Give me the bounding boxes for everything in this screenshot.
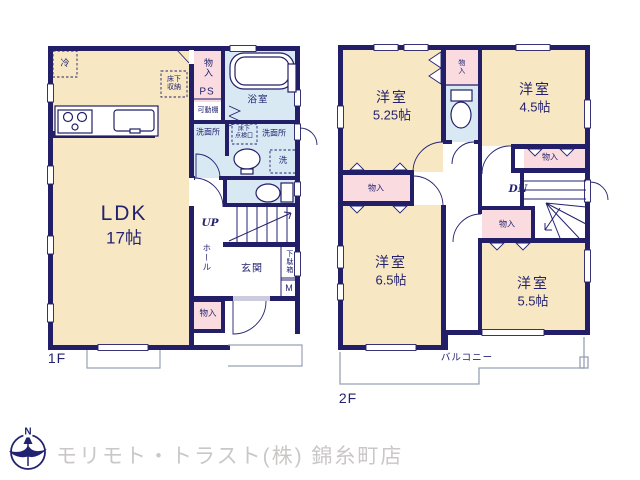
company-name: モリモト・トラスト(株) 錦糸町店: [56, 440, 403, 470]
floor1-tag: 1F: [48, 351, 66, 367]
hall-label: ホール: [201, 244, 211, 273]
floorplan-drawing: [0, 0, 640, 480]
fridge-label: 冷: [60, 58, 69, 68]
bath-counter: [288, 64, 296, 92]
room4-label: 洋室: [517, 276, 549, 292]
laundry-label: 洗: [279, 156, 288, 166]
floor2-tag: 2F: [339, 391, 357, 407]
room2-label: 洋室: [519, 82, 551, 98]
back-door-arc: [300, 128, 317, 145]
compass-icon: [9, 434, 47, 469]
entrance-label: 玄関: [241, 263, 263, 274]
compass-north-label: N: [23, 426, 32, 437]
room3-size-label: 6.5帖: [375, 274, 406, 289]
shoe-box-label: 下駄箱: [285, 250, 293, 274]
closet-left-label-2f: 物入: [368, 185, 384, 194]
stairs-down-label: DN: [509, 184, 528, 196]
stairs-up-label: UP: [201, 218, 218, 230]
washroom-right-label: 洗面所: [262, 130, 286, 139]
room4-size-label: 5.5帖: [517, 295, 548, 310]
room3-label: 洋室: [375, 255, 407, 271]
ldk-size-label: 17帖: [106, 228, 142, 247]
closet-top-label-1f: 物入: [203, 58, 213, 78]
bird-icon: [9, 446, 47, 458]
room3-door-arc: [413, 176, 443, 206]
ps-label: PS: [199, 86, 214, 97]
toilet-icon-2f: [451, 90, 472, 128]
sink-icon: [114, 110, 154, 131]
underfloor-access-label: 床下 点検口: [235, 126, 253, 139]
floorplan-page: LDK 17帖 冷 床下 収納 物入 PS 可動棚 浴室 洗面所 床下 点検口 …: [0, 0, 640, 480]
kitchen-counter: [55, 106, 158, 136]
ldk-label: LDK: [101, 202, 148, 226]
closet-right-label-2f: 物入: [542, 154, 558, 163]
movable-shelf-label: 可動棚: [198, 107, 219, 115]
closet-bottom-label-1f: 物入: [199, 309, 216, 319]
bathroom-label: 浴室: [247, 96, 268, 107]
underfloor-storage-label: 床下 収納: [167, 76, 181, 92]
balcony-label: バルコニー: [441, 354, 493, 365]
room2-size-label: 4.5帖: [519, 101, 550, 116]
closet-center-label-2f: 物入: [499, 221, 515, 230]
closet-top-label-2f: 物入: [457, 59, 465, 75]
bathtub-icon: [230, 53, 294, 89]
meter-label: M: [285, 283, 293, 293]
room1-size-label: 5.25帖: [373, 109, 411, 124]
floor1-plan: [48, 46, 318, 369]
stair-window-arc: [590, 182, 608, 200]
toilet-icon-1f: [256, 183, 293, 202]
washroom-left-label: 洗面所: [196, 129, 220, 138]
room1-label: 洋室: [376, 90, 408, 106]
